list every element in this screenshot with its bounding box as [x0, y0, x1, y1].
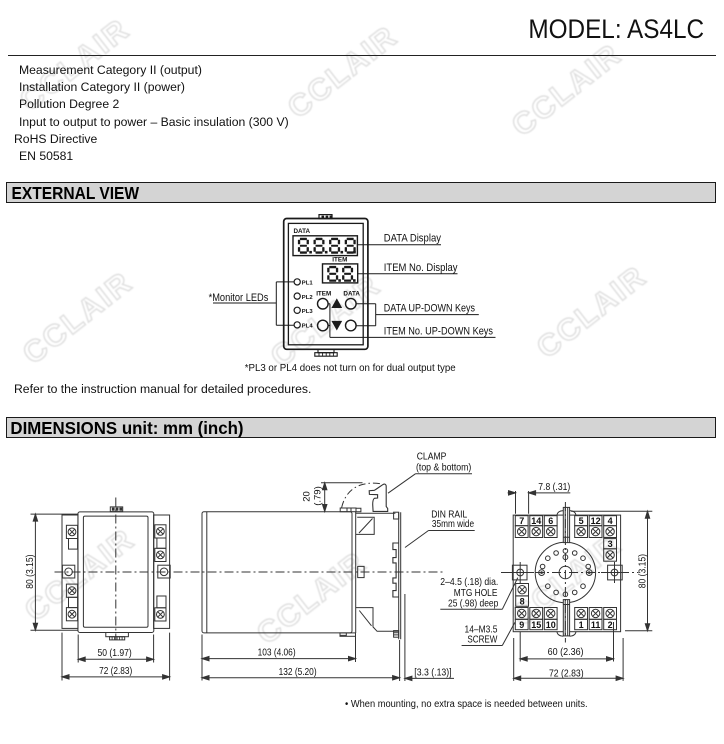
svg-text:SCREW: SCREW: [467, 633, 497, 645]
svg-text:35mm wide: 35mm wide: [432, 518, 474, 530]
svg-text:(top & bottom): (top & bottom): [416, 462, 471, 474]
svg-text:PL3: PL3: [302, 309, 314, 315]
svg-text:12: 12: [591, 516, 601, 526]
svg-text:DATA UP-DOWN Keys: DATA UP-DOWN Keys: [384, 303, 476, 315]
svg-text:72 (2.83): 72 (2.83): [99, 666, 132, 677]
svg-text:7: 7: [519, 516, 524, 526]
svg-text:15: 15: [531, 620, 541, 630]
svg-text:103 (4.06): 103 (4.06): [258, 648, 296, 659]
svg-text:2: 2: [608, 620, 613, 630]
svg-text:132 (5.20): 132 (5.20): [279, 667, 317, 678]
svg-text:8: 8: [520, 597, 525, 607]
svg-text:25 (.98) deep: 25 (.98) deep: [448, 598, 498, 610]
svg-text:10: 10: [546, 620, 556, 630]
svg-text:7.8 (.31): 7.8 (.31): [538, 482, 570, 493]
svg-text:1: 1: [579, 620, 584, 630]
svg-text:72 (2.83): 72 (2.83): [549, 668, 584, 679]
svg-text:PL2: PL2: [302, 295, 314, 301]
svg-text:20: 20: [301, 491, 312, 502]
svg-text:DATA: DATA: [294, 228, 311, 235]
svg-text:PL1: PL1: [302, 281, 314, 287]
svg-text:14: 14: [531, 516, 541, 526]
svg-text:6: 6: [548, 516, 553, 526]
svg-text:4: 4: [608, 516, 613, 526]
svg-text:80 (3.15): 80 (3.15): [638, 554, 649, 588]
svg-text:DATA Display: DATA Display: [384, 233, 442, 245]
svg-text:11: 11: [591, 620, 601, 630]
svg-text:*Monitor LEDs: *Monitor LEDs: [209, 292, 269, 304]
svg-text:5: 5: [579, 516, 584, 526]
svg-text:DATA: DATA: [343, 291, 360, 298]
svg-text:9: 9: [519, 620, 524, 630]
svg-text:ITEM No. UP-DOWN Keys: ITEM No. UP-DOWN Keys: [384, 326, 494, 338]
svg-text:80 (3.15): 80 (3.15): [25, 555, 36, 589]
svg-text:ITEM: ITEM: [316, 291, 331, 298]
svg-text:*PL3 or PL4 does not turn on f: *PL3 or PL4 does not turn on for dual ou…: [245, 363, 456, 374]
svg-text:(.79): (.79): [312, 486, 323, 506]
svg-text:CLAMP: CLAMP: [417, 450, 447, 462]
svg-text:3: 3: [608, 539, 613, 549]
svg-text:PL4: PL4: [302, 324, 314, 330]
svg-text:50 (1.97): 50 (1.97): [98, 648, 132, 659]
svg-text:[3.3 (.13)]: [3.3 (.13)]: [414, 667, 451, 678]
svg-text:60 (2.36): 60 (2.36): [548, 647, 584, 658]
svg-text:ITEM No. Display: ITEM No. Display: [384, 262, 458, 274]
svg-text:ITEM: ITEM: [332, 257, 347, 264]
